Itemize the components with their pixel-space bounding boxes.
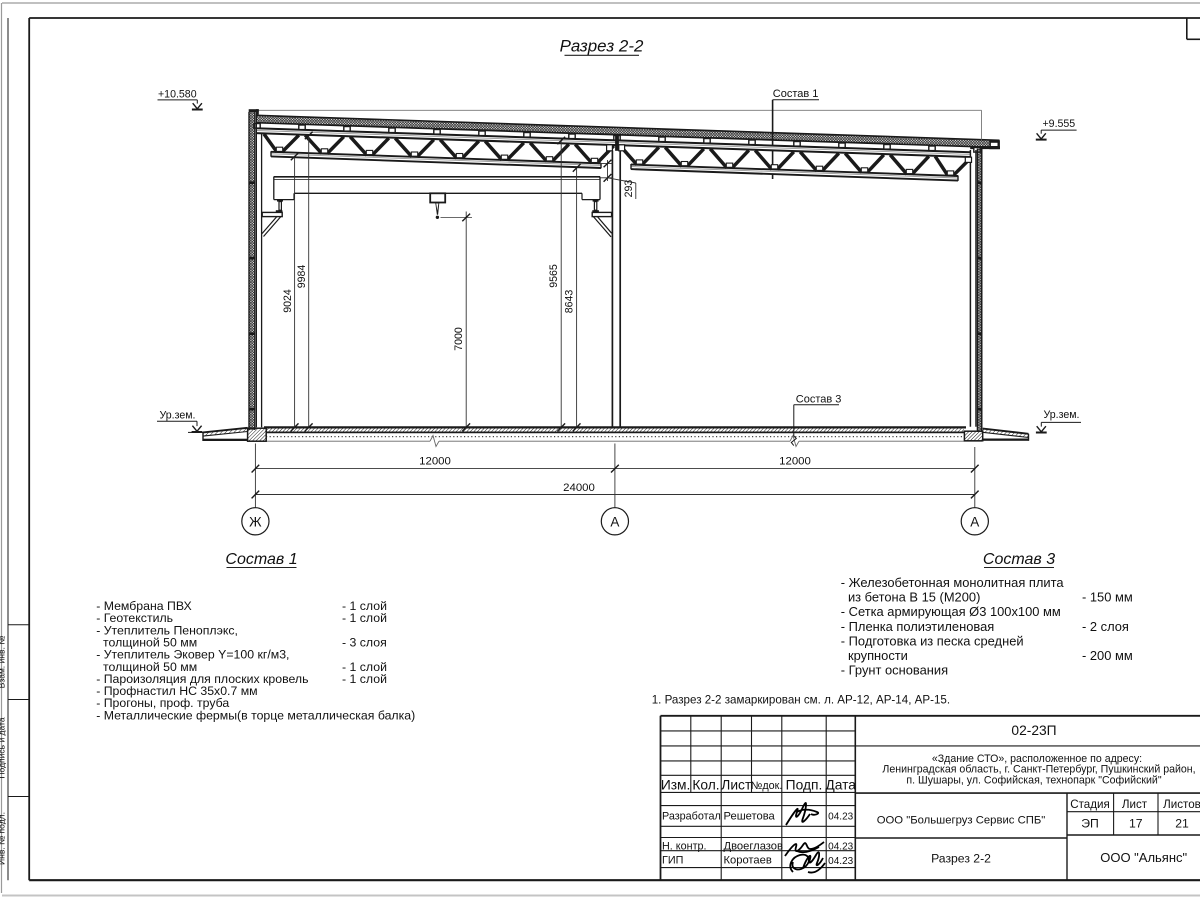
svg-text:Кол.: Кол. — [692, 777, 719, 792]
svg-text:Подпись и дата: Подпись и дата — [0, 717, 7, 778]
svg-text:Разрез 2-2: Разрез 2-2 — [560, 36, 644, 55]
svg-text:из бетона В 15 (М200): из бетона В 15 (М200) — [841, 590, 981, 605]
svg-text:ООО "Большегруз Сервис СПБ": ООО "Большегруз Сервис СПБ" — [877, 814, 1046, 826]
svg-text:ГИП: ГИП — [662, 854, 683, 866]
svg-text:Разработал: Разработал — [662, 811, 721, 823]
svg-text:9024: 9024 — [282, 289, 294, 313]
svg-text:- 200 мм: - 200 мм — [1082, 648, 1133, 663]
svg-text:Коротаев: Коротаев — [724, 854, 772, 866]
svg-text:Взам. инв. №: Взам. инв. № — [0, 636, 7, 689]
svg-text:293: 293 — [623, 180, 635, 198]
svg-text:12000: 12000 — [779, 456, 811, 468]
svg-text:- Металлические фермы(в торце: - Металлические фермы(в торце металличес… — [96, 708, 415, 722]
svg-text:Состав 1: Состав 1 — [225, 551, 297, 568]
svg-text:Подп.: Подп. — [786, 777, 823, 792]
svg-text:21: 21 — [1175, 817, 1189, 831]
svg-text:Лист: Лист — [1122, 798, 1148, 811]
svg-text:02-23П: 02-23П — [1011, 723, 1056, 738]
svg-text:- Железобетонная монолитная п: - Железобетонная монолитная плита — [841, 575, 1065, 590]
svg-text:Изм.: Изм. — [661, 777, 691, 792]
svg-text:Ж: Ж — [249, 514, 262, 529]
svg-text:+9.555: +9.555 — [1043, 118, 1076, 130]
svg-text:Инв. № подл.: Инв. № подл. — [0, 812, 7, 865]
svg-text:1. Разрез 2-2 замаркирован см.: 1. Разрез 2-2 замаркирован см. л. АР-12,… — [652, 694, 950, 707]
svg-text:24000: 24000 — [563, 482, 595, 494]
svg-text:9984: 9984 — [296, 265, 308, 289]
svg-text:Состав 3: Состав 3 — [796, 393, 842, 405]
svg-text:- 150 мм: - 150 мм — [1082, 590, 1133, 605]
svg-text:- Сетка армирующая Ø3 100x100: - Сетка армирующая Ø3 100x100 мм — [841, 604, 1061, 619]
svg-text:А: А — [610, 514, 619, 529]
svg-text:Ур.зем.: Ур.зем. — [160, 409, 196, 421]
svg-text:№док.: №док. — [751, 780, 783, 792]
svg-text:ЭП: ЭП — [1081, 817, 1099, 831]
svg-text:- 3 слоя: - 3 слоя — [342, 636, 387, 650]
svg-text:Разрез 2-2: Разрез 2-2 — [931, 852, 991, 866]
svg-text:- Пленка полиэтиленовая: - Пленка полиэтиленовая — [841, 619, 994, 634]
svg-text:+10.580: +10.580 — [158, 88, 197, 100]
svg-text:7000: 7000 — [453, 327, 465, 351]
svg-text:п. Шушары, ул. Софийская, техн: п. Шушары, ул. Софийская, технопарк "Соф… — [906, 774, 1161, 786]
svg-text:- 1 слой: - 1 слой — [342, 611, 387, 625]
svg-text:04.23: 04.23 — [828, 812, 853, 823]
svg-text:Ур.зем.: Ур.зем. — [1044, 409, 1080, 421]
svg-text:17: 17 — [1129, 817, 1143, 831]
svg-text:Решетова: Решетова — [724, 811, 776, 823]
svg-text:- 1 слой: - 1 слой — [342, 672, 387, 686]
svg-text:8643: 8643 — [564, 290, 576, 314]
svg-text:04.23: 04.23 — [828, 856, 853, 867]
svg-text:Стадия: Стадия — [1070, 798, 1110, 811]
svg-text:- 2 слоя: - 2 слоя — [1082, 619, 1129, 634]
svg-text:Двоеглазов: Двоеглазов — [724, 840, 784, 852]
svg-text:Состав 3: Состав 3 — [983, 551, 1055, 568]
svg-text:04.23: 04.23 — [828, 842, 853, 853]
svg-text:Лист: Лист — [721, 777, 752, 792]
svg-text:Дата: Дата — [825, 777, 856, 792]
svg-text:А: А — [970, 514, 979, 529]
svg-text:12000: 12000 — [419, 456, 451, 468]
svg-text:9565: 9565 — [548, 264, 560, 288]
svg-text:Н. контр.: Н. контр. — [662, 840, 707, 852]
svg-text:крупности: крупности — [841, 648, 908, 663]
svg-text:- Подготовка из песка средней: - Подготовка из песка средней — [841, 633, 1024, 648]
svg-text:Листов: Листов — [1163, 798, 1200, 811]
svg-text:ООО "Альянс": ООО "Альянс" — [1100, 850, 1187, 865]
svg-text:Состав 1: Состав 1 — [773, 88, 819, 100]
svg-text:- Грунт основания: - Грунт основания — [841, 663, 948, 678]
